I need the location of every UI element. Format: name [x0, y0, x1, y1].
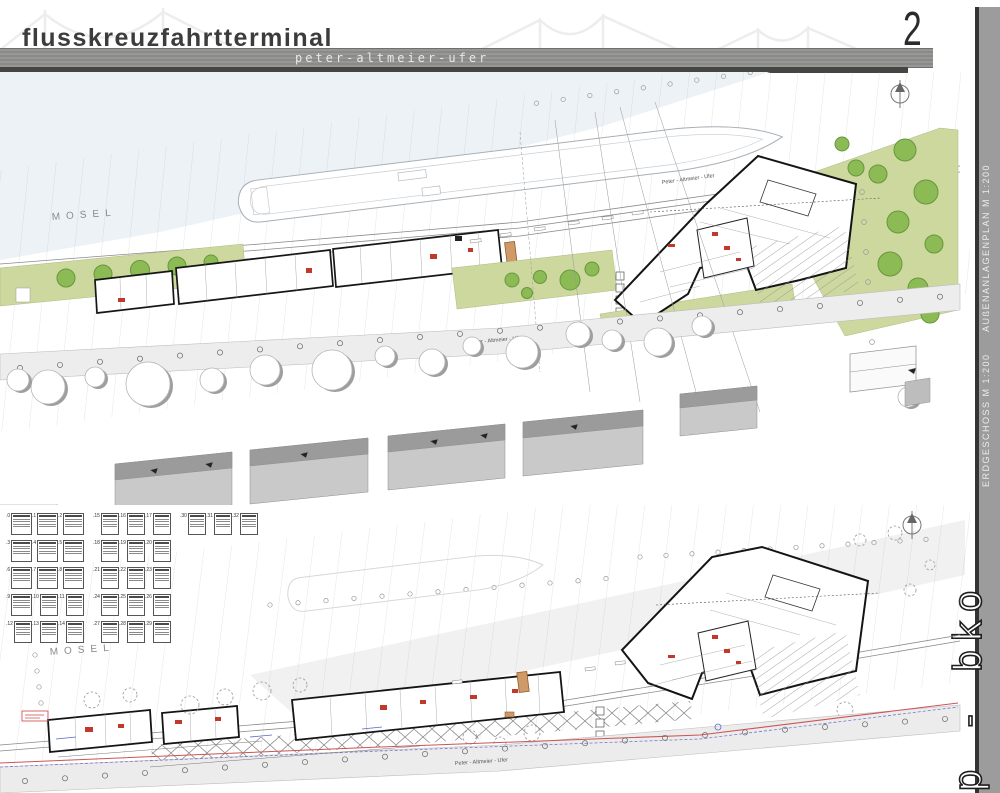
room-data-box: [37, 567, 58, 589]
room-schedule-cell: .21: [93, 567, 119, 589]
room-schedule-cell: .24: [93, 594, 119, 616]
room-number: .12: [6, 621, 13, 643]
room-schedule-row: .6.7.8.21.22.23: [6, 567, 306, 589]
room-data-box: [153, 540, 171, 562]
room-schedule-row: .9.10.11.24.25.26: [6, 594, 306, 616]
header-subtitle: peter-altmeier-ufer: [295, 51, 489, 65]
room-schedule-cell: .1: [32, 513, 58, 535]
room-data-box: [188, 513, 206, 535]
room-schedule-cell: .30: [180, 513, 206, 535]
room-number: .17: [145, 513, 152, 535]
presentation-board: flusskreuzfahrtterminal peter-altmeier-u…: [0, 0, 1000, 793]
room-number: .18: [93, 540, 100, 562]
room-number: .25: [119, 594, 126, 616]
plaza-slab: [16, 288, 30, 302]
room-number: .29: [145, 621, 152, 643]
room-number: .4: [32, 540, 36, 562]
room-schedule-cell: .3: [6, 540, 32, 562]
room-schedule-cell: .16: [119, 513, 145, 535]
sidebar-label-siteplan: AUßENANLAGENPLAN M 1:200: [981, 164, 991, 332]
kiosk-small: [505, 712, 514, 717]
room-data-box: [101, 513, 119, 535]
room-number: .6: [6, 567, 10, 589]
room-schedule-cell: .19: [119, 540, 145, 562]
room-number: .23: [145, 567, 152, 589]
room-schedule-cell: .2: [58, 513, 84, 535]
room-number: .28: [119, 621, 126, 643]
room-number: .9: [6, 594, 10, 616]
room-schedule-cell: .20: [145, 540, 171, 562]
room-number: .2: [58, 513, 62, 535]
room-schedule-cell: .9: [6, 594, 32, 616]
room-number: .20: [145, 540, 152, 562]
room-schedule-cell: .14: [58, 621, 84, 643]
header-subtitle-bar: peter-altmeier-ufer: [0, 48, 933, 68]
room-schedule-cell: .6: [6, 567, 32, 589]
room-number: .5: [58, 540, 62, 562]
room-schedule-cell: .10: [32, 594, 58, 616]
room-data-box: [63, 540, 84, 562]
room-number: .22: [119, 567, 126, 589]
room-number: .27: [93, 621, 100, 643]
room-data-box: [40, 594, 58, 616]
room-schedule-cell: .11: [58, 594, 84, 616]
room-schedule-cell: .18: [93, 540, 119, 562]
room-schedule-cell: .23: [145, 567, 171, 589]
room-data-box: [127, 567, 145, 589]
room-data-box: [127, 594, 145, 616]
room-schedule-cell: .8: [58, 567, 84, 589]
site-plan: MOSEL Peter - Altmeier - Ufer: [0, 72, 970, 505]
room-data-box: [101, 540, 119, 562]
room-data-box: [37, 540, 58, 562]
room-schedule-cell: .32: [232, 513, 258, 535]
room-data-box: [127, 540, 145, 562]
kiosk: [517, 671, 529, 692]
room-schedule-cell: .31: [206, 513, 232, 535]
room-schedule-cell: .12: [6, 621, 32, 643]
room-number: .26: [145, 594, 152, 616]
room-data-box: [40, 621, 58, 643]
room-data-box: [11, 567, 32, 589]
room-number: .7: [32, 567, 36, 589]
room-data-box: [101, 621, 119, 643]
room-schedule-cell: .22: [119, 567, 145, 589]
room-number: .8: [58, 567, 62, 589]
room-schedule: .0.1.2.15.16.17.30.31.32.3.4.5.18.19.20.…: [6, 513, 306, 648]
room-number: .24: [93, 594, 100, 616]
room-schedule-cell: .17: [145, 513, 171, 535]
room-schedule-cell: .4: [32, 540, 58, 562]
room-data-box: [101, 594, 119, 616]
room-number: .14: [58, 621, 65, 643]
room-schedule-row: .12.13.14.27.28.29: [6, 621, 306, 643]
room-number: .31: [206, 513, 213, 535]
room-number: .30: [180, 513, 187, 535]
room-schedule-cell: .27: [93, 621, 119, 643]
room-data-box: [240, 513, 258, 535]
room-number: .11: [58, 594, 65, 616]
room-schedule-cell: .13: [32, 621, 58, 643]
room-data-box: [37, 513, 58, 535]
room-schedule-cell: .15: [93, 513, 119, 535]
room-data-box: [66, 594, 84, 616]
room-number: .19: [119, 540, 126, 562]
room-data-box: [11, 594, 32, 616]
room-data-box: [14, 621, 32, 643]
room-data-box: [63, 567, 84, 589]
sidebar-label-groundfloor: ERDGESCHOSS M 1:200: [981, 353, 991, 487]
room-data-box: [153, 513, 171, 535]
room-data-box: [66, 621, 84, 643]
room-data-box: [101, 567, 119, 589]
room-number: .3: [6, 540, 10, 562]
room-schedule-cell: .26: [145, 594, 171, 616]
room-number: .10: [32, 594, 39, 616]
room-number: .16: [119, 513, 126, 535]
room-number: .1: [32, 513, 36, 535]
room-data-box: [214, 513, 232, 535]
room-schedule-cell: .5: [58, 540, 84, 562]
room-schedule-row: .3.4.5.18.19.20: [6, 540, 306, 562]
page-number: 2: [903, 2, 922, 57]
room-schedule-cell: .28: [119, 621, 145, 643]
room-schedule-cell: .25: [119, 594, 145, 616]
room-schedule-cell: .29: [145, 621, 171, 643]
room-schedule-cell: .7: [32, 567, 58, 589]
room-number: .13: [32, 621, 39, 643]
room-data-box: [127, 513, 145, 535]
room-number: .0: [6, 513, 10, 535]
room-data-box: [153, 567, 171, 589]
room-number: .32: [232, 513, 239, 535]
room-data-box: [11, 540, 32, 562]
room-schedule-row: .0.1.2.15.16.17.30.31.32: [6, 513, 306, 535]
room-number: .21: [93, 567, 100, 589]
room-data-box: [11, 513, 32, 535]
room-data-box: [153, 621, 171, 643]
room-data-box: [127, 621, 145, 643]
room-schedule-cell: .0: [6, 513, 32, 535]
room-number: .15: [93, 513, 100, 535]
room-data-box: [153, 594, 171, 616]
room-data-box: [63, 513, 84, 535]
